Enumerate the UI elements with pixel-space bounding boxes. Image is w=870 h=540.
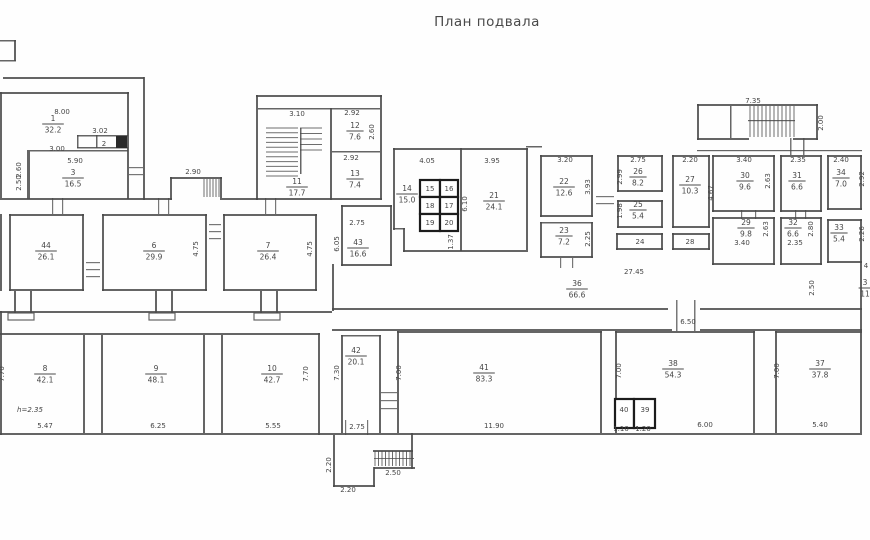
wall	[712, 210, 775, 212]
dimension-label-vertical: 2.25	[584, 231, 592, 247]
door-tick	[374, 458, 414, 459]
room-area: 37.8	[812, 371, 829, 380]
wall	[102, 289, 207, 291]
wall	[700, 329, 862, 331]
room-area: 16.6	[350, 250, 367, 259]
wall	[780, 217, 782, 265]
cell-number: 18	[426, 202, 435, 210]
room-number: 29	[741, 218, 751, 227]
wall	[332, 264, 334, 311]
wall	[775, 331, 777, 433]
room-area: 26.4	[260, 253, 277, 262]
room-number: 13	[350, 169, 360, 178]
wall	[205, 214, 207, 291]
wall	[775, 331, 862, 333]
room-area: 7.4	[349, 181, 361, 190]
wall	[373, 467, 375, 487]
door-tick	[381, 408, 397, 409]
room-number: 10	[267, 364, 277, 373]
wall	[661, 200, 663, 228]
dimension-label-vertical: 2.20	[325, 457, 333, 473]
wall	[332, 329, 672, 331]
door-tick	[86, 269, 100, 270]
room-area: 7.0	[835, 180, 847, 189]
door-tick	[803, 138, 805, 155]
room-number: 21	[489, 191, 499, 200]
cell-number: 39	[641, 406, 650, 414]
wall	[780, 210, 822, 212]
wall	[827, 219, 829, 263]
wall	[27, 150, 30, 199]
wall	[697, 150, 862, 151]
room-number: 44	[41, 241, 51, 250]
wall	[773, 155, 775, 212]
dimension-label-vertical: 3.93	[584, 179, 592, 195]
door-tick	[560, 258, 561, 268]
door-tick	[694, 300, 696, 331]
room-number: 3	[71, 168, 76, 177]
dimension-label: 3.40	[734, 239, 750, 247]
wall	[672, 233, 674, 250]
dimension-label-vertical: 2.60	[368, 124, 376, 140]
dimension-label: 2.20	[340, 486, 356, 494]
dimension-label: 7.35	[745, 97, 761, 105]
wall	[526, 146, 542, 148]
door-tick	[367, 420, 368, 435]
shaft-plate	[254, 313, 280, 320]
room-area: 11	[860, 290, 870, 299]
wall	[14, 40, 16, 61]
dimension-label-vertical: 6.10	[461, 196, 469, 212]
dimension-label: 4.05	[419, 157, 435, 165]
wall	[411, 450, 413, 469]
wall	[333, 435, 335, 487]
dimension-label-vertical: 7.00	[615, 363, 623, 379]
dimension-label-vertical: 2.00	[817, 115, 825, 131]
dimension-label-vertical: 2.50	[808, 280, 816, 296]
room-number: 7	[266, 241, 271, 250]
room-number: 27	[685, 175, 695, 184]
wall	[155, 291, 157, 313]
wall	[672, 248, 710, 250]
door-tick	[755, 210, 756, 219]
room-number: 14	[402, 184, 412, 193]
door-tick	[209, 224, 221, 225]
room-area: 15.0	[399, 196, 416, 205]
room-number: 42	[351, 346, 361, 355]
wall	[300, 128, 302, 174]
room-area: 5.4	[632, 212, 644, 221]
wall	[616, 233, 618, 250]
floor-plan: 132.2316.54426.1629.9726.41117.7127.6137…	[0, 0, 870, 540]
dimension-label: 1.10	[613, 425, 629, 433]
wall	[397, 331, 399, 433]
room-number: 38	[668, 359, 678, 368]
wall	[256, 95, 258, 200]
wall	[222, 198, 258, 200]
dimension-label: 3.95	[484, 157, 500, 165]
wall	[793, 138, 818, 140]
door-tick	[572, 258, 573, 268]
room-area: 26.1	[38, 253, 55, 262]
wall	[616, 233, 663, 235]
wall	[170, 177, 222, 179]
dimension-label-vertical: 2.99	[616, 169, 624, 185]
door-tick	[86, 276, 100, 277]
door-tick	[805, 210, 806, 219]
room-number: 8	[43, 364, 48, 373]
door-tick	[52, 198, 53, 214]
room-area: 54.3	[665, 371, 682, 380]
wall	[223, 214, 317, 216]
dimension-label: 5.47	[37, 422, 53, 430]
wall	[697, 138, 749, 140]
wall	[315, 214, 317, 291]
wall	[143, 77, 145, 200]
door-tick	[209, 238, 221, 239]
wall	[276, 291, 278, 313]
wall	[332, 308, 668, 310]
wall	[256, 198, 382, 200]
wall	[77, 135, 79, 148]
wall	[672, 155, 674, 228]
wall	[341, 335, 381, 337]
wall	[83, 335, 85, 433]
wall	[600, 331, 602, 433]
door-tick	[265, 198, 266, 214]
door-tick	[596, 196, 614, 197]
room-number: 11	[292, 177, 302, 186]
dimension-label: 6.00	[697, 421, 713, 429]
room-area: 8.2	[632, 179, 644, 188]
wall	[258, 108, 380, 110]
wall	[30, 150, 128, 152]
dimension-label: 27.45	[624, 268, 644, 276]
wall	[0, 433, 862, 435]
wall	[318, 333, 320, 435]
wall	[330, 108, 332, 200]
wall	[672, 226, 710, 228]
wall	[14, 291, 16, 313]
wall	[0, 92, 2, 198]
wall	[827, 261, 862, 263]
door-tick	[158, 198, 159, 214]
cell-number: 17	[445, 202, 454, 210]
room-area: 16.5	[65, 180, 82, 189]
room-area: 32.2	[45, 126, 62, 135]
cell-number: 16	[445, 185, 454, 193]
dimension-label: 2.75	[349, 423, 365, 431]
wall	[540, 222, 542, 258]
room-number: 9	[154, 364, 159, 373]
room-area: 7.2	[558, 238, 570, 247]
cell-number: 15	[426, 185, 435, 193]
dimension-label-vertical: 2.63	[764, 173, 772, 189]
wall	[780, 263, 822, 265]
room-number: 41	[479, 363, 489, 372]
wall	[773, 217, 775, 265]
wall	[820, 217, 822, 265]
cell-number: 20	[445, 219, 454, 227]
dimension-label-vertical: 2.80	[807, 221, 815, 237]
room-area: 66.6	[569, 291, 586, 300]
wall	[827, 219, 862, 221]
dimension-label: 2.92	[343, 154, 359, 162]
door-tick	[676, 300, 678, 331]
dimension-label: 5.40	[812, 421, 828, 429]
dimension-label-vertical: 2.26	[858, 226, 866, 242]
wall	[617, 226, 663, 228]
room-number: 43	[353, 238, 363, 247]
dimension-label: 2.75	[630, 156, 646, 164]
wall	[748, 120, 795, 121]
wall	[171, 291, 173, 313]
room-area: 5.4	[833, 235, 845, 244]
wall	[397, 331, 602, 333]
wall	[697, 104, 699, 140]
wall	[127, 92, 129, 199]
wall	[379, 335, 381, 433]
wall	[341, 335, 343, 433]
dimension-label-vertical: 1.37	[447, 234, 455, 250]
dimension-label-vertical: 7.70	[302, 366, 310, 382]
wall	[700, 308, 862, 310]
wall	[220, 177, 222, 200]
wall	[780, 217, 822, 219]
room-number: 36	[572, 279, 582, 288]
dimension-label-vertical: 2.50	[15, 175, 23, 191]
dimension-label-vertical: 7.00	[395, 365, 403, 381]
room-area: 20.1	[348, 358, 365, 367]
wall	[526, 148, 528, 252]
door-tick	[596, 203, 614, 204]
wall	[223, 289, 317, 291]
wall	[730, 106, 732, 138]
wall	[615, 331, 755, 333]
wall	[0, 198, 172, 200]
room-area: 6.6	[787, 230, 799, 239]
dimension-label-vertical: 1.98	[616, 203, 624, 219]
height-note: h=2.35	[17, 406, 43, 414]
door-tick	[275, 198, 276, 214]
room-number: 34	[836, 168, 846, 177]
dimension-label: 2.35	[790, 156, 806, 164]
dimension-label: 2.75	[349, 219, 365, 227]
wall	[30, 291, 32, 313]
dimension-label: 2.35	[787, 239, 803, 247]
wall	[3, 77, 144, 79]
room-number: 25	[633, 200, 643, 209]
wall	[0, 60, 16, 62]
room-number: 6	[152, 241, 157, 250]
cell-number: 28	[686, 238, 695, 246]
dimension-label: 3.02	[92, 127, 108, 135]
room-number: 22	[559, 177, 569, 186]
shaft-plate	[149, 313, 175, 320]
dimension-label: 2.92	[344, 109, 360, 117]
door-tick	[381, 392, 397, 393]
cell-number: 2	[102, 140, 106, 148]
wall	[223, 214, 225, 291]
wall	[860, 331, 862, 433]
cell-number: 40	[620, 406, 629, 414]
dimension-label-vertical: 2.63	[762, 221, 770, 237]
wall	[0, 333, 320, 335]
wall	[102, 214, 207, 216]
dimension-label: 2.40	[833, 156, 849, 164]
room-area: 12.6	[556, 189, 573, 198]
dimension-label: 6.50	[680, 318, 696, 326]
wall	[0, 40, 16, 42]
wall	[820, 155, 822, 212]
wall	[170, 177, 172, 200]
room-area: 48.1	[148, 376, 165, 385]
door-tick	[381, 400, 397, 401]
shaft-plate	[8, 313, 34, 320]
wall	[540, 155, 542, 217]
room-number: 31	[792, 171, 802, 180]
wall	[540, 256, 593, 258]
cell-number: 24	[636, 238, 645, 246]
wall	[411, 433, 413, 450]
wall	[617, 190, 663, 192]
wall	[672, 233, 710, 235]
wall	[753, 331, 755, 433]
door-tick	[129, 167, 143, 168]
room-area: 7.6	[349, 133, 361, 142]
cell-number: 4	[864, 262, 869, 270]
wall	[661, 233, 663, 250]
wall	[403, 228, 405, 252]
door-tick	[345, 420, 346, 435]
dimension-label: 1.20	[635, 425, 651, 433]
wall	[9, 289, 84, 291]
wall	[390, 205, 392, 266]
wall	[827, 155, 829, 210]
room-area: 83.3	[476, 375, 493, 384]
wall	[661, 155, 663, 192]
room-area: 29.9	[146, 253, 163, 262]
room-area: 42.1	[37, 376, 54, 385]
dimension-label: 2.90	[185, 168, 201, 176]
screenshot-page: { "title": "План подвала", "canvas": { "…	[0, 0, 870, 540]
room-number: 33	[834, 223, 844, 232]
dimension-label: 3.00	[49, 145, 65, 153]
door-tick	[168, 198, 169, 214]
wall	[260, 291, 262, 313]
wall	[82, 214, 84, 291]
wall	[780, 155, 782, 212]
wall	[221, 335, 223, 433]
wall	[540, 222, 593, 224]
dimension-label-vertical: 4.75	[306, 241, 314, 257]
door-tick	[209, 231, 221, 232]
room-number: 30	[740, 171, 750, 180]
room-area: 6.6	[791, 183, 803, 192]
wall	[403, 250, 526, 252]
dimension-label: 3.10	[289, 110, 305, 118]
room-area: 42.7	[264, 376, 281, 385]
dimension-label-vertical: 2.92	[858, 171, 866, 187]
door-tick	[62, 198, 63, 214]
dimension-label: 2.50	[385, 469, 401, 477]
wall	[0, 92, 129, 94]
door-tick	[129, 174, 143, 175]
dimension-label: 11.90	[484, 422, 504, 430]
wall	[9, 214, 11, 291]
dimension-label: 8.00	[54, 108, 70, 116]
cell-number: 19	[426, 219, 435, 227]
wall	[341, 205, 392, 207]
wall	[712, 263, 775, 265]
wall	[256, 95, 382, 97]
dimension-label-vertical: 7.00	[773, 363, 781, 379]
wall	[341, 264, 392, 266]
dark-cell	[116, 136, 127, 148]
wall	[332, 151, 380, 153]
wall	[203, 335, 205, 433]
wall	[393, 148, 395, 230]
dimension-label-vertical: 6.05	[333, 236, 341, 252]
wall	[102, 214, 104, 291]
room-area: 24.1	[486, 203, 503, 212]
room-number: 23	[559, 226, 569, 235]
dimension-label-vertical: 4.75	[192, 241, 200, 257]
wall	[101, 335, 103, 433]
wall	[9, 214, 84, 216]
room-number: 26	[633, 167, 643, 176]
wall	[827, 208, 862, 210]
door-tick	[86, 262, 100, 263]
dimension-label: 5.90	[67, 157, 83, 165]
dimension-label: 3.20	[557, 156, 573, 164]
room-number: 12	[350, 121, 360, 130]
dimension-label-vertical: 7.30	[333, 365, 341, 381]
dimension-label-vertical: 4.67	[707, 185, 715, 201]
room-number: 3	[863, 278, 868, 287]
room-area: 10.3	[682, 187, 699, 196]
room-area: 17.7	[289, 189, 306, 198]
dimension-label: 3.40	[736, 156, 752, 164]
wall	[96, 135, 98, 148]
wall	[380, 95, 382, 200]
dimension-label: 2.20	[682, 156, 698, 164]
wall	[341, 205, 343, 266]
wall	[712, 155, 714, 212]
room-number: 37	[815, 359, 825, 368]
room-area: 9.8	[740, 230, 752, 239]
wall	[712, 217, 714, 265]
dimension-label: 6.25	[150, 422, 166, 430]
room-number: 32	[788, 218, 798, 227]
wall	[708, 233, 710, 250]
wall	[616, 248, 663, 250]
dimension-label: 5.55	[265, 422, 281, 430]
dimension-label-vertical: 7.70	[0, 366, 6, 382]
wall	[0, 214, 2, 291]
wall	[540, 215, 593, 217]
room-area: 9.6	[739, 183, 751, 192]
door-tick	[790, 138, 792, 155]
